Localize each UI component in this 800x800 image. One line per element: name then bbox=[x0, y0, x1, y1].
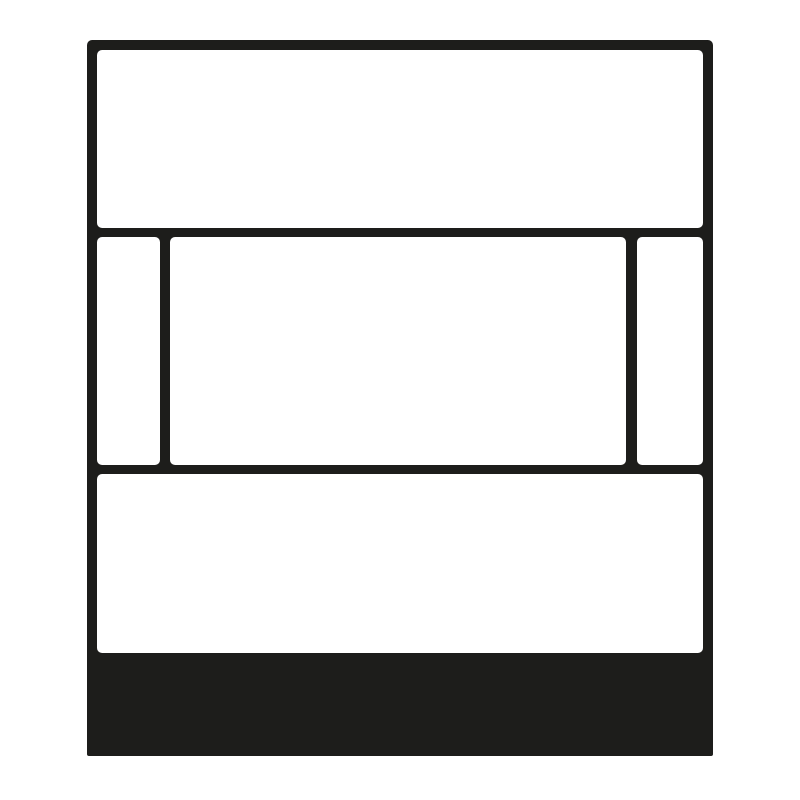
top-panel bbox=[97, 50, 703, 228]
middle-right-slot bbox=[637, 237, 703, 465]
device-schematic-figure bbox=[0, 0, 800, 800]
middle-left-slot bbox=[97, 237, 160, 465]
bottom-panel bbox=[97, 474, 703, 653]
middle-center-window bbox=[170, 237, 626, 465]
device-plate-outline bbox=[87, 40, 713, 756]
